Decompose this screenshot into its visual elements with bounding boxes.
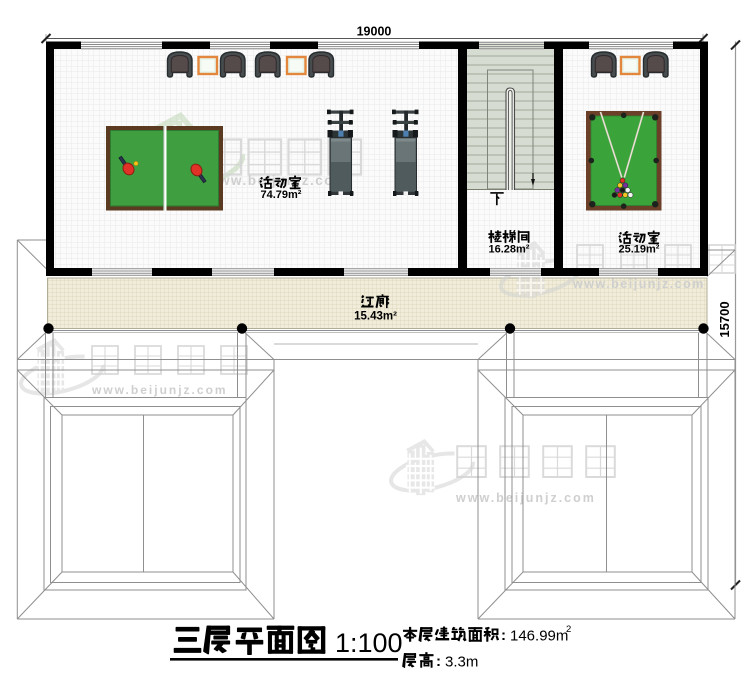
svg-text:www.beijunjz.com: www.beijunjz.com [91, 383, 228, 397]
svg-text:www.beijunjz.com: www.beijunjz.com [572, 277, 705, 291]
svg-text::: : [501, 627, 506, 644]
svg-text:1:100: 1:100 [335, 628, 403, 658]
svg-text:2: 2 [566, 624, 571, 635]
svg-text:25.19m²: 25.19m² [619, 244, 660, 256]
svg-text:15700: 15700 [717, 301, 732, 337]
svg-text:146.99m: 146.99m [510, 628, 568, 645]
svg-text::: : [436, 653, 441, 670]
svg-text:www.beijunjz.com: www.beijunjz.com [455, 491, 596, 505]
svg-text:3.3m: 3.3m [445, 654, 478, 671]
svg-text:19000: 19000 [357, 25, 392, 39]
svg-text:74.79m²: 74.79m² [261, 189, 302, 201]
svg-text:15.43m²: 15.43m² [354, 311, 397, 323]
svg-text:16.28m²: 16.28m² [489, 244, 530, 256]
